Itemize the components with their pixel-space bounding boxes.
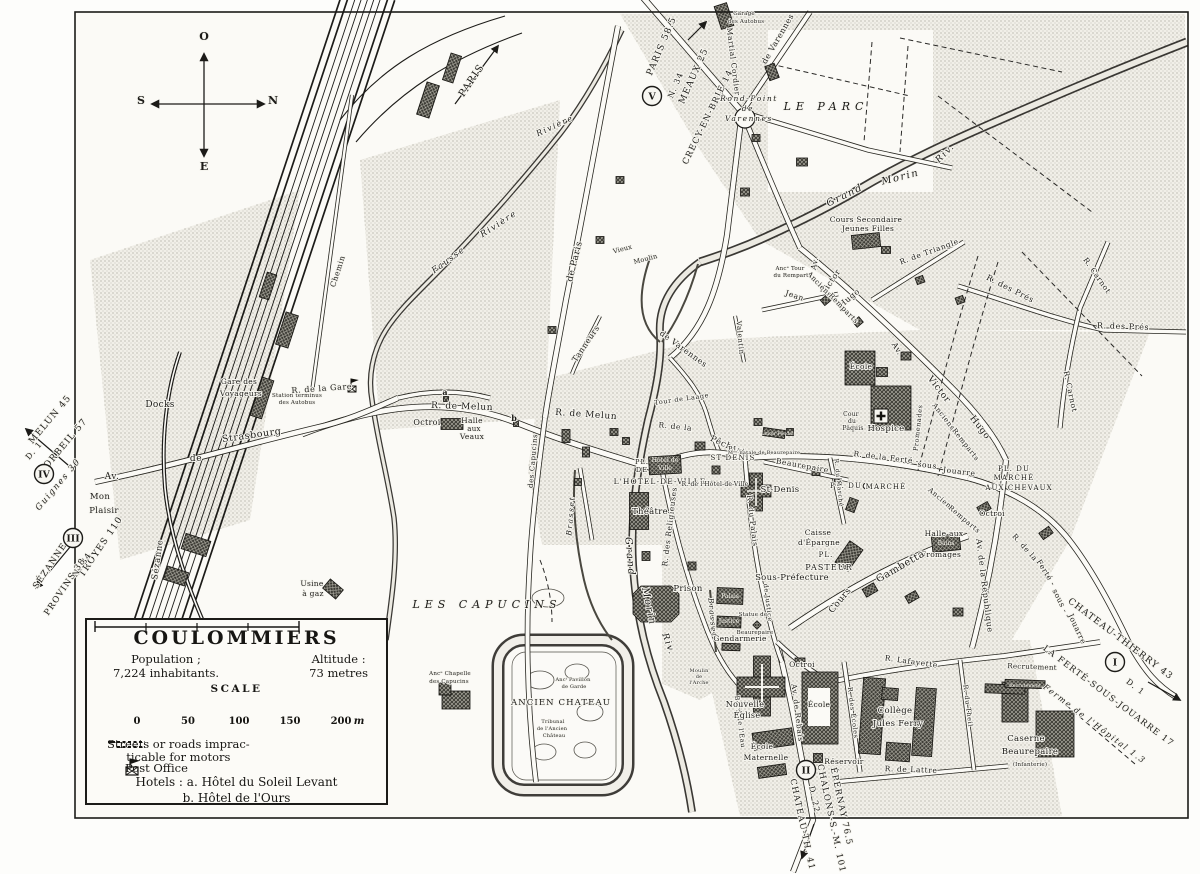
building: [575, 479, 582, 486]
map-label: N: [268, 94, 278, 107]
building: [688, 562, 696, 570]
map-label: Rond-Point: [719, 94, 778, 103]
map-page: MELUN 45CORBEIL 57D. 1Guignes 30TROYES 1…: [0, 0, 1200, 874]
map-label: Manoir Féodal: [758, 430, 794, 437]
map-label: PL.: [635, 458, 649, 466]
map-label: Usine: [300, 579, 324, 588]
map-label: R. de l'Hôtel-de-Ville: [682, 481, 749, 488]
building: [616, 177, 624, 184]
scale-tick: 100: [229, 716, 250, 727]
map-label: St-Denis: [761, 485, 800, 495]
building: [885, 742, 910, 762]
hotel-b: b. Hôtel de l'Ours: [183, 791, 291, 805]
map-label: PASTEUR: [805, 563, 853, 572]
map-label: E: [200, 160, 208, 173]
hospice-cross-icon: [874, 409, 888, 423]
building: [596, 237, 604, 244]
route-marker: I: [1106, 653, 1125, 672]
map-label: b: [511, 413, 517, 423]
map-label: MARCHÉ: [994, 473, 1035, 482]
post-office-legend-icon: [125, 758, 141, 776]
altitude-block: Altitude : 73 metres: [309, 652, 368, 681]
post-office-row: Post Office: [125, 758, 188, 775]
building: [712, 466, 720, 474]
building: [548, 327, 556, 334]
map-label: Halle: [461, 416, 483, 425]
map-label: Tribunal: [541, 719, 564, 725]
map-label: Cour: [843, 411, 859, 418]
map-label: R. des Prés: [1097, 321, 1150, 332]
map-label: PL. DU: [830, 482, 862, 490]
building: [623, 438, 630, 445]
building: [851, 233, 880, 250]
building: [814, 754, 823, 763]
map-label: Hospice: [868, 424, 905, 434]
map-label: (Infanterie): [1013, 761, 1047, 768]
map-label: des Autobus: [279, 400, 315, 406]
map-label: Statue de: [739, 612, 768, 618]
map-label: Maternelle: [744, 753, 789, 762]
building: [722, 643, 740, 651]
map-label: Bains: [938, 540, 955, 547]
map-label: Octroi: [789, 660, 815, 669]
map-label: Mᵒⁿ natale de Beaurepaire: [728, 450, 800, 456]
building: [953, 608, 963, 616]
map-label: du Rempart: [773, 273, 809, 279]
route-marker: IV: [35, 465, 54, 484]
svg-text:V: V: [647, 92, 656, 103]
hotels-label: Hotels :: [136, 775, 183, 789]
map-label: AUX CHEVAUX: [984, 484, 1052, 492]
building: [797, 158, 808, 166]
svg-text:III: III: [66, 534, 80, 545]
hotel-a: a. Hôtel du Soleil Levant: [187, 775, 338, 789]
map-label: Palais: [721, 593, 739, 600]
map-label: Pâquis: [842, 425, 863, 432]
building: [882, 687, 899, 700]
svg-text:I: I: [1113, 658, 1118, 669]
legend-box: COULOMMIERS Population ; 7,224 inhabitan…: [85, 618, 388, 805]
map-label: École: [808, 700, 831, 709]
map-label: Ancᵗ Pavillon: [554, 677, 591, 683]
building: [562, 430, 570, 443]
map-label: du: [848, 418, 856, 425]
map-label: O: [199, 30, 209, 43]
scale-tick: 200: [331, 716, 352, 727]
map-label: Jules Ferry: [872, 719, 923, 729]
scale-tick: 0: [134, 716, 141, 727]
map-label: École: [751, 742, 774, 751]
map-label: Garage: [733, 11, 755, 17]
map-label: Cours Secondaire: [830, 215, 903, 224]
map-label: Justice: [718, 618, 740, 625]
map-label: Av.: [104, 472, 120, 482]
map-label: Docks: [145, 400, 174, 410]
map-label: Réservoir: [824, 757, 864, 766]
svg-text:II: II: [802, 766, 811, 777]
map-label: des Capucins: [429, 679, 469, 685]
scale-bar: [87, 620, 313, 632]
map-label: PL. DU: [998, 465, 1030, 473]
map-label: ANCIEN CHATEAU: [510, 698, 611, 708]
map-label: PL.: [819, 551, 834, 559]
scale-label: SCALE: [87, 683, 386, 695]
map-label: de Garde: [562, 684, 587, 690]
population-block: Population ; 7,224 inhabitants.: [113, 652, 219, 681]
map-label: a: [442, 387, 447, 397]
map-label: Gare des: [221, 377, 257, 386]
building: [610, 429, 618, 436]
altitude-value: 73 metres: [309, 666, 368, 680]
scale-ticks: 050100150200m: [87, 716, 386, 728]
map-label: Beaurepaire: [1002, 747, 1059, 757]
map-label: Veaux: [459, 432, 485, 441]
map-label: Halle aux: [925, 529, 964, 538]
map-label: S: [137, 94, 145, 107]
map-label: LES CAPUCINS: [411, 598, 561, 611]
map-label: Caisse: [805, 528, 832, 537]
building: [752, 135, 760, 142]
building: [877, 368, 888, 377]
map-label: R. de Lattre: [885, 764, 938, 775]
building: [754, 419, 762, 426]
impracticable-road-icon: [107, 738, 145, 750]
map-label: de: [742, 104, 754, 113]
scale-unit: m: [354, 716, 365, 727]
map-label: DE: [636, 466, 648, 474]
map-label: Église: [734, 711, 761, 720]
building: [441, 419, 463, 430]
map-label: Octroi: [979, 509, 1005, 518]
map-label: Caserne: [1007, 734, 1045, 744]
hotels-block: Hotels : a. Hôtel du Soleil Levant b. Hô…: [87, 775, 386, 806]
map-label: École: [850, 362, 873, 371]
altitude-label: Altitude :: [309, 652, 368, 666]
svg-text:IV: IV: [38, 470, 50, 481]
population-value: 7,224 inhabitants.: [113, 666, 219, 680]
map-label: Hôtel de: [652, 457, 679, 464]
population-label: Population ;: [113, 652, 219, 666]
map-label: Château: [543, 732, 566, 739]
map-label: de: [190, 454, 202, 464]
map-label: des Autobus: [728, 19, 764, 25]
building: [741, 188, 750, 196]
map-label: Octroi: [413, 418, 440, 427]
building: [583, 447, 590, 457]
route-marker: II: [797, 761, 816, 780]
building: [901, 352, 911, 360]
map-label: l'Arche: [689, 680, 708, 686]
map-label: Sous-Préfecture: [755, 572, 829, 583]
map-label: à gaz: [302, 589, 324, 598]
building: [695, 442, 705, 450]
route-marker: III: [64, 529, 83, 548]
map-label: Prison: [673, 584, 702, 594]
map-label: Ancᵉ Tour: [775, 266, 805, 272]
map-label: Ancᵉ Chapelle: [428, 671, 471, 677]
map-label: Nouvelle: [726, 700, 764, 709]
map-label: Voyageurs: [219, 389, 262, 398]
scale-tick: 150: [280, 716, 301, 727]
scale-tick: 50: [181, 716, 195, 727]
map-label: Jeunes Filles: [841, 224, 894, 233]
map-label: Ville: [657, 465, 672, 472]
map-label: de l'Ancien: [537, 726, 568, 732]
map-label: Plaisir: [89, 506, 119, 516]
map-label: Varennes: [725, 114, 773, 123]
map-label: Collège: [878, 705, 913, 716]
route-marker: V: [643, 87, 662, 106]
map-label: MARCHÉ: [866, 482, 907, 491]
building: [882, 247, 891, 254]
map-label: Recrutement: [1009, 683, 1041, 689]
map-label: Mon: [90, 492, 110, 502]
map-label: Gendarmerie: [713, 634, 767, 643]
map-label: d'Épargne: [798, 538, 840, 547]
building: [642, 552, 650, 561]
map-label: LE PARC: [783, 100, 869, 113]
map-label: Théâtre: [632, 506, 668, 517]
